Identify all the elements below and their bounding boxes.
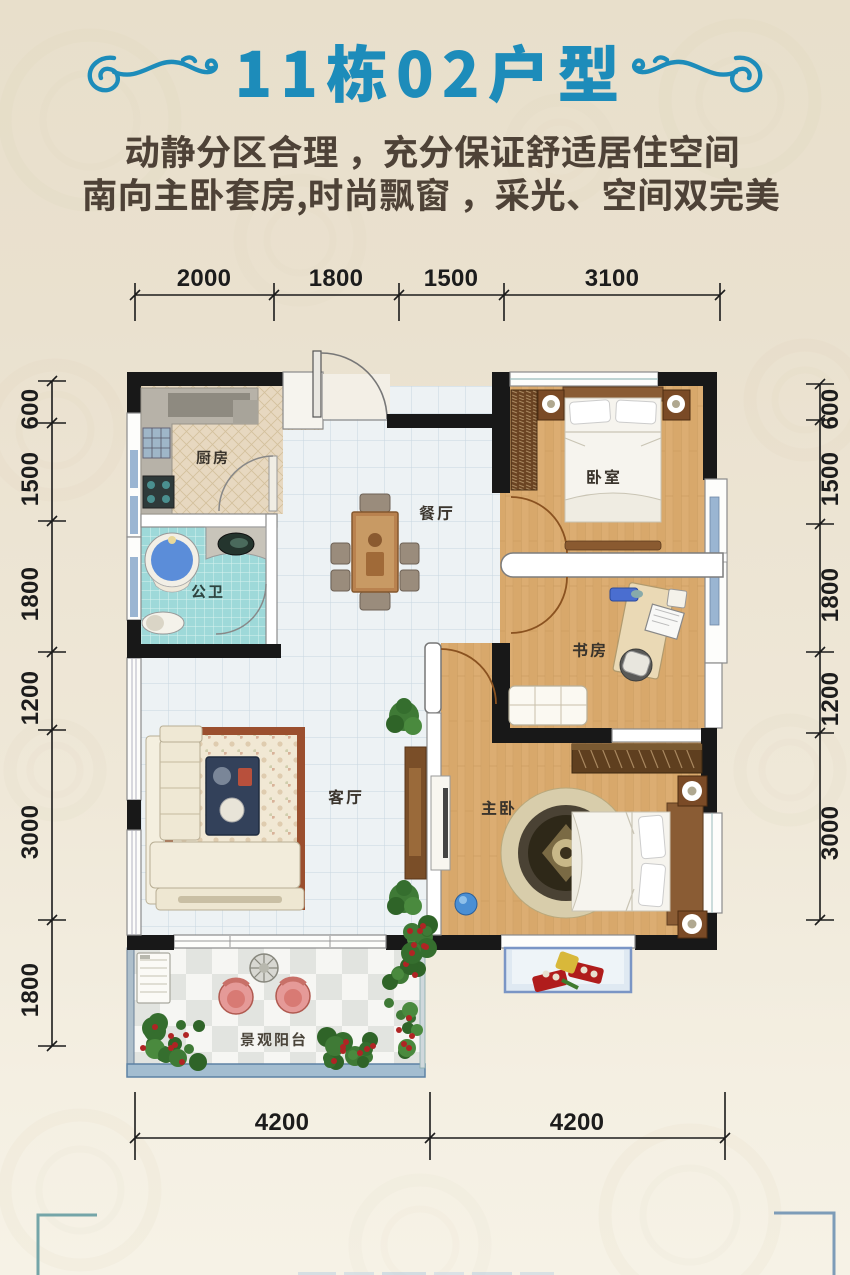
svg-text:1200: 1200	[17, 671, 44, 726]
svg-text:1500: 1500	[424, 265, 479, 292]
svg-text:600: 600	[17, 389, 44, 430]
svg-text:2000: 2000	[177, 265, 232, 292]
svg-text:600: 600	[817, 389, 844, 430]
svg-text:3100: 3100	[585, 265, 640, 292]
svg-text:3000: 3000	[17, 805, 44, 860]
svg-text:1800: 1800	[17, 567, 44, 622]
svg-text:1800: 1800	[17, 963, 44, 1018]
svg-text:4200: 4200	[255, 1109, 310, 1136]
svg-text:3000: 3000	[817, 806, 844, 861]
svg-text:1800: 1800	[309, 265, 364, 292]
svg-text:1500: 1500	[17, 452, 44, 507]
svg-text:1500: 1500	[817, 452, 844, 507]
svg-text:4200: 4200	[550, 1109, 605, 1136]
svg-text:1200: 1200	[817, 672, 844, 727]
svg-text:1800: 1800	[817, 568, 844, 623]
